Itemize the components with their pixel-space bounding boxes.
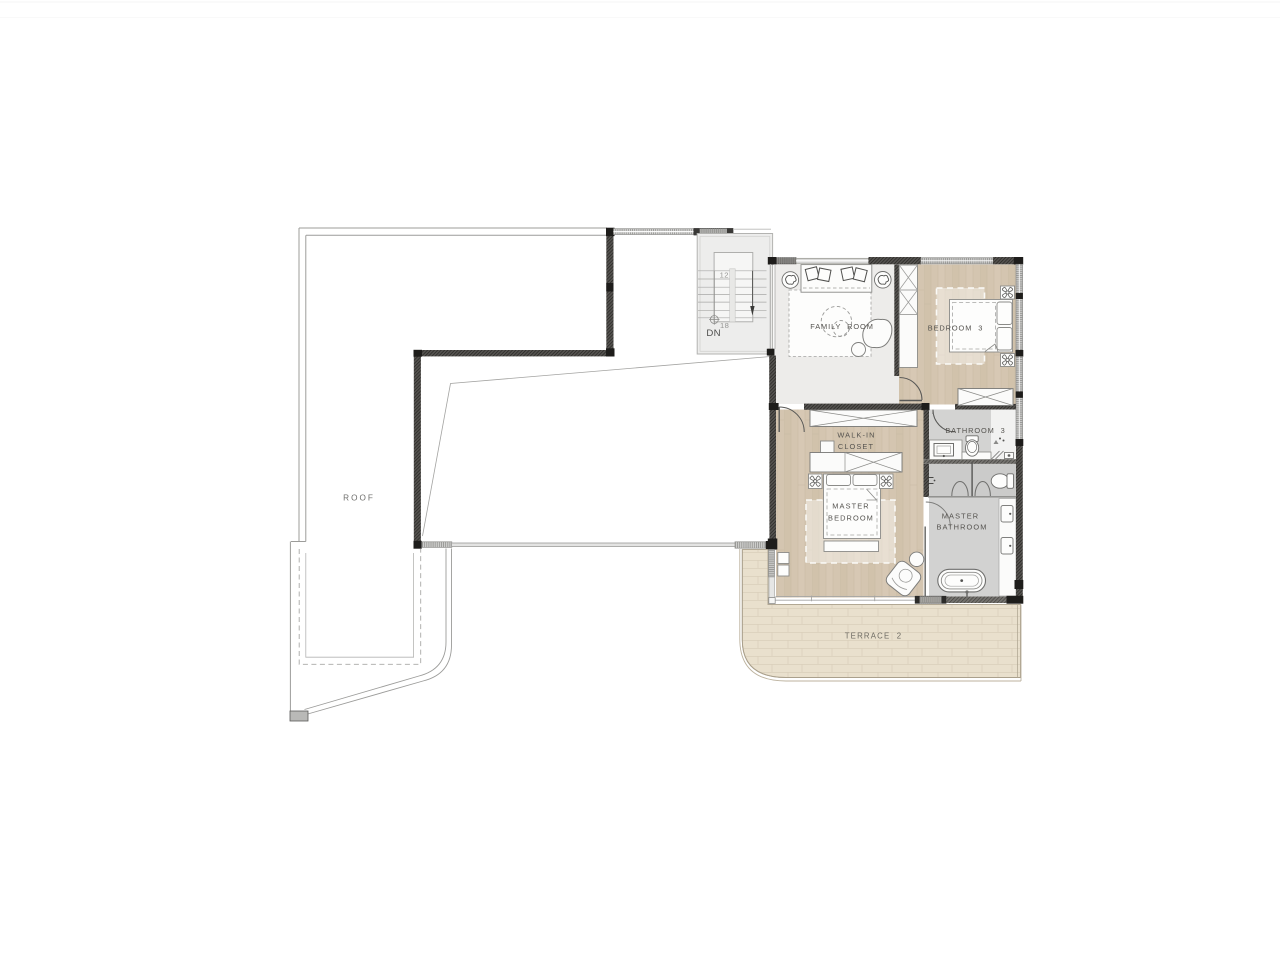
svg-text:MASTER: MASTER — [832, 502, 869, 511]
svg-text:ROOF: ROOF — [343, 494, 375, 503]
svg-text:BATHROOM: BATHROOM — [937, 523, 988, 532]
svg-text:12: 12 — [720, 270, 729, 279]
svg-text:DN: DN — [706, 328, 720, 339]
svg-text:TERRACE 2: TERRACE 2 — [845, 631, 903, 640]
svg-text:18: 18 — [720, 321, 729, 330]
svg-text:FAMILY ROOM: FAMILY ROOM — [810, 322, 874, 331]
svg-text:BEDROOM 3: BEDROOM 3 — [928, 323, 983, 332]
svg-text:BATHROOM 3: BATHROOM 3 — [945, 426, 1005, 435]
svg-text:WALK-IN: WALK-IN — [837, 431, 875, 440]
svg-text:MASTER: MASTER — [942, 512, 979, 521]
svg-text:CLOSET: CLOSET — [838, 442, 874, 451]
svg-text:BEDROOM: BEDROOM — [828, 514, 874, 523]
